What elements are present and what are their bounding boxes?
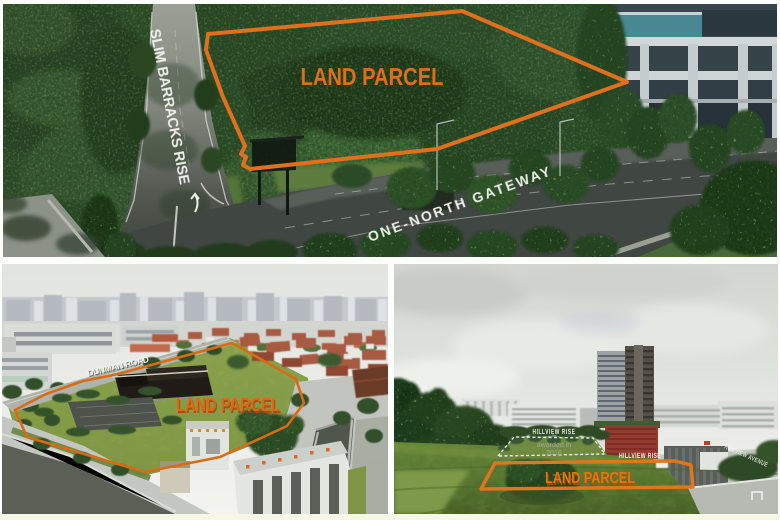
svg-text:LAND PARCEL: LAND PARCEL	[301, 64, 444, 91]
svg-text:2016: 2016	[546, 450, 562, 457]
svg-text:HILLVIEW RISE: HILLVIEW RISE	[533, 427, 576, 436]
svg-text:HILLVIEW RISE: HILLVIEW RISE	[619, 451, 661, 460]
svg-text:awarded in: awarded in	[537, 441, 571, 449]
svg-text:LAND PARCEL: LAND PARCEL	[176, 395, 280, 416]
svg-text:LAND PARCEL: LAND PARCEL	[545, 470, 635, 487]
